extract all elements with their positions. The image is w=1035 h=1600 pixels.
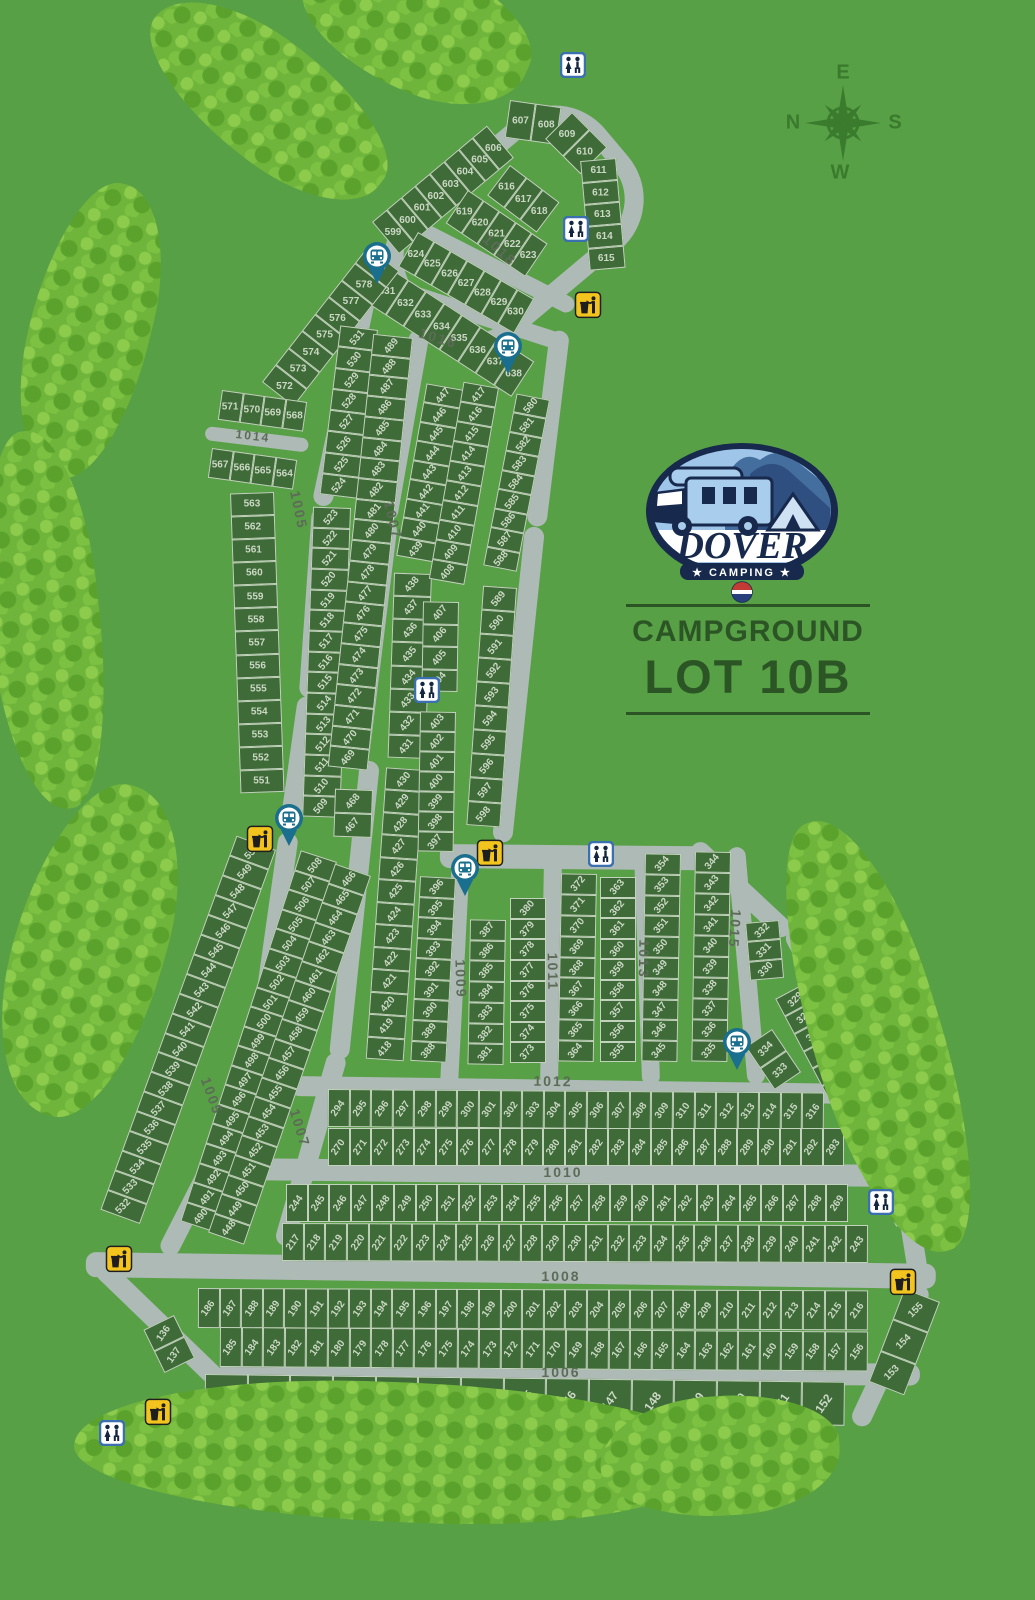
lot-282: 282 [586,1128,608,1166]
lot-226: 226 [477,1224,499,1262]
dover-camping-logo: DOVER ★ CAMPING ★ [630,430,854,608]
lot-521: 521 [311,548,350,570]
lot-589: 589 [481,586,517,612]
lot-255: 255 [524,1184,546,1222]
lot-270: 270 [328,1128,350,1166]
lot-308: 308 [630,1091,652,1129]
road-label-1010: 1010 [543,1164,582,1180]
lot-387: 387 [470,919,506,940]
lot-351: 351 [644,916,680,937]
lot-178: 178 [371,1328,393,1368]
lot-201: 201 [522,1289,544,1329]
lot-388: 388 [410,1040,447,1062]
title-rule-bottom [626,712,870,715]
lot-230: 230 [564,1224,586,1262]
lot-553: 553 [238,723,283,748]
lot-402: 402 [419,731,455,752]
trash-icon [890,1268,917,1300]
lot-422: 422 [372,947,411,972]
lot-397: 397 [418,831,454,852]
lot-221: 221 [369,1223,391,1261]
lot-392: 392 [415,958,452,980]
lot-296: 296 [371,1089,393,1127]
lot-393: 393 [416,938,453,960]
bus-stop-icon [491,331,525,380]
lot-191: 191 [306,1288,328,1328]
lot-378: 378 [510,939,546,960]
lot-309: 309 [651,1091,673,1129]
lot-181: 181 [306,1328,328,1368]
lot-594: 594 [473,705,509,731]
lot-192: 192 [328,1288,350,1328]
lot-166: 166 [630,1330,652,1370]
lot-593: 593 [475,681,511,707]
lot-219: 219 [325,1223,347,1261]
lot-263: 263 [697,1184,719,1222]
lot-419: 419 [367,1014,406,1039]
lot-277: 277 [479,1128,501,1166]
lot-273: 273 [393,1128,415,1166]
lot-249: 249 [394,1184,416,1222]
lot-360: 360 [600,939,636,960]
lot-362: 362 [600,898,636,919]
lot-340: 340 [693,935,729,957]
lot-468: 468 [334,789,373,814]
lot-247: 247 [351,1184,373,1222]
lot-276: 276 [457,1128,479,1166]
lot-243: 243 [846,1225,868,1263]
lot-299: 299 [436,1090,458,1128]
compass-letter-left: N [786,112,800,135]
road-label-1008: 1008 [541,1268,580,1284]
lot-264: 264 [718,1184,740,1222]
lot-strip: 363362361360359358357356355 [600,877,636,1062]
restroom-icon [868,1189,894,1220]
lot-172: 172 [500,1329,522,1369]
lot-197: 197 [436,1289,458,1329]
lot-281: 281 [565,1128,587,1166]
lot-367: 367 [559,978,595,1000]
lot-279: 279 [522,1128,544,1166]
lot-strip: 2172182192202212222232242252262272282292… [282,1223,868,1263]
lot-165: 165 [652,1330,674,1370]
lot-300: 300 [457,1090,479,1128]
lot-564: 564 [272,457,297,490]
lot-289: 289 [737,1128,759,1166]
lot-185: 185 [220,1327,242,1367]
road-label-1009: 1009 [452,959,469,999]
compass-letter-bottom: W [831,162,850,185]
road-label-1012: 1012 [533,1073,572,1090]
lot-346: 346 [642,1020,678,1041]
lot-357: 357 [600,1000,636,1021]
lot-strip: 563562561560559558557556555554553552551 [230,492,284,793]
lot-568: 568 [282,399,307,432]
lot-168: 168 [587,1330,609,1370]
lot-272: 272 [371,1128,393,1166]
lot-438: 438 [393,573,432,597]
lot-383: 383 [468,1002,504,1023]
lot-316: 316 [802,1092,824,1130]
logo-badge [732,582,752,602]
road-label-1013: 1013 [636,939,653,978]
lot-399: 399 [418,791,454,812]
lot-190: 190 [284,1288,306,1328]
bus-stop-icon [448,853,482,902]
lot-294: 294 [328,1089,350,1127]
lot-429: 429 [383,790,422,815]
lot-285: 285 [651,1128,673,1166]
lot-371: 371 [560,894,596,916]
restroom-icon [99,1420,125,1451]
lot-223: 223 [412,1223,434,1261]
lot-304: 304 [543,1091,565,1129]
lot-366: 366 [558,999,594,1021]
lot-406: 406 [422,624,458,647]
lot-372: 372 [561,873,597,895]
lot-232: 232 [607,1224,629,1262]
lot-268: 268 [805,1184,827,1222]
lot-426: 426 [378,857,417,882]
logo-name: DOVER [676,525,808,567]
lot-379: 379 [510,919,546,940]
lot-236: 236 [694,1224,716,1262]
lot-237: 237 [716,1225,738,1263]
lot-301: 301 [479,1090,501,1128]
lot-592: 592 [476,657,512,683]
lot-157: 157 [824,1331,846,1371]
lot-244: 244 [286,1184,308,1222]
lot-182: 182 [285,1327,307,1367]
lot-238: 238 [738,1225,760,1263]
lot-312: 312 [716,1092,738,1130]
lot-557: 557 [235,630,280,655]
lot-560: 560 [232,561,277,586]
lot-615: 615 [588,246,626,271]
lot-205: 205 [608,1289,630,1329]
lot-220: 220 [347,1223,369,1261]
lot-400: 400 [419,771,455,792]
lot-160: 160 [760,1331,782,1371]
lot-365: 365 [558,1020,594,1042]
lot-555: 555 [236,677,281,702]
lot-207: 207 [652,1290,674,1330]
bus-stop-icon [272,803,306,852]
lot-261: 261 [653,1184,675,1222]
lot-strip: 372371370369368367366365364 [558,873,597,1062]
lot-284: 284 [629,1128,651,1166]
lot-195: 195 [392,1289,414,1329]
restroom-icon [563,216,589,247]
lot-354: 354 [645,853,681,874]
lot-380: 380 [510,898,546,919]
lot-212: 212 [760,1290,782,1330]
lot-267: 267 [783,1184,805,1222]
lot-260: 260 [632,1184,654,1222]
lot-381: 381 [467,1044,503,1065]
lot-358: 358 [600,980,636,1001]
lot-310: 310 [673,1091,695,1129]
lot-523: 523 [312,507,351,529]
road-label-1015: 1015 [726,909,745,949]
lot-159: 159 [781,1331,803,1371]
lot-194: 194 [371,1289,393,1329]
lot-337: 337 [692,998,728,1020]
lot-307: 307 [608,1091,630,1129]
lot-176: 176 [414,1328,436,1368]
lot-186: 186 [198,1288,220,1328]
lot-291: 291 [780,1128,802,1166]
lot-297: 297 [392,1089,414,1127]
lot-184: 184 [241,1327,263,1367]
lot-strip: 2702712722732742752762772782792802812822… [328,1128,844,1166]
lot-163: 163 [695,1330,717,1370]
road-label-1005: 1005 [287,489,311,531]
lot-398: 398 [418,811,454,832]
lot-199: 199 [479,1289,501,1329]
lot-245: 245 [308,1184,330,1222]
lot-235: 235 [673,1224,695,1262]
page-title: CAMPGROUND [622,615,874,649]
compass-letter-top: E [836,62,849,85]
map-title-block: CAMPGROUND LOT 10B [622,604,874,715]
lot-162: 162 [716,1330,738,1370]
lot-292: 292 [801,1128,823,1166]
lot-303: 303 [522,1090,544,1128]
lot-180: 180 [328,1328,350,1368]
lot-348: 348 [642,978,678,999]
lot-225: 225 [455,1224,477,1262]
lot-strip: 1861871881891901911921931941951961971981… [198,1288,868,1330]
lot-175: 175 [436,1329,458,1369]
lot-239: 239 [759,1225,781,1263]
lot-strip: 2442452462472482492502512522532542552562… [286,1184,848,1222]
lot-234: 234 [651,1224,673,1262]
lot-352: 352 [644,895,680,916]
lot-355: 355 [600,1042,636,1063]
lot-173: 173 [479,1329,501,1369]
lot-467: 467 [333,813,372,838]
lot-595: 595 [471,729,507,755]
lot-377: 377 [510,960,546,981]
lot-269: 269 [826,1184,848,1222]
lot-189: 189 [263,1288,285,1328]
lot-210: 210 [716,1290,738,1330]
title-rule-top [626,604,870,607]
lot-559: 559 [233,584,278,609]
lot-strip: 403402401400399398397 [418,711,456,852]
lot-405: 405 [422,646,458,669]
lot-614: 614 [586,224,624,249]
lot-203: 203 [565,1289,587,1329]
road-label-1006: 1006 [541,1364,580,1380]
lot-613: 613 [584,202,622,227]
lot-229: 229 [542,1224,564,1262]
lot-248: 248 [372,1184,394,1222]
lot-394: 394 [417,917,454,939]
lot-519: 519 [309,589,348,611]
lot-179: 179 [349,1328,371,1368]
lot-278: 278 [500,1128,522,1166]
lot-590: 590 [480,610,516,636]
lot-193: 193 [349,1289,371,1329]
lot-280: 280 [543,1128,565,1166]
lot-208: 208 [673,1290,695,1330]
lot-177: 177 [392,1328,414,1368]
lot-361: 361 [600,918,636,939]
lot-427: 427 [380,835,419,860]
lot-359: 359 [600,959,636,980]
lot-520: 520 [310,569,349,591]
lot-158: 158 [803,1331,825,1371]
lot-257: 257 [567,1184,589,1222]
lot-196: 196 [414,1289,436,1329]
lot-206: 206 [630,1290,652,1330]
lot-156: 156 [846,1331,868,1371]
lot-558: 558 [234,607,279,632]
lot-302: 302 [500,1090,522,1128]
lot-562: 562 [231,515,276,540]
road-label-1011: 1011 [545,953,562,992]
lot-423: 423 [374,924,413,949]
lot-561: 561 [232,538,277,563]
lot-198: 198 [457,1289,479,1329]
lot-253: 253 [480,1184,502,1222]
lot-370: 370 [560,915,596,937]
lot-374: 374 [510,1022,546,1043]
lot-306: 306 [586,1091,608,1129]
lot-strip: 332331330 [745,920,784,981]
lot-265: 265 [740,1184,762,1222]
lot-209: 209 [695,1290,717,1330]
lot-428: 428 [381,812,420,837]
compass-rose: E S W N [783,63,903,183]
lot-343: 343 [694,872,730,894]
lot-strip: 387386385384383382381 [467,919,506,1065]
lot-strip: 380379378377376375374373 [510,898,546,1063]
lot-376: 376 [510,981,546,1002]
restroom-icon [588,841,614,872]
lot-524: 524 [320,473,360,499]
lot-313: 313 [737,1092,759,1130]
lot-strip: 567566565564 [208,448,297,490]
lot-228: 228 [521,1224,543,1262]
lot-330: 330 [748,959,784,981]
lot-401: 401 [419,751,455,772]
lot-522: 522 [312,527,351,549]
lot-341: 341 [694,914,730,936]
lot-286: 286 [672,1128,694,1166]
lot-252: 252 [459,1184,481,1222]
lot-611: 611 [580,158,618,183]
lot-242: 242 [824,1225,846,1263]
lot-612: 612 [582,180,620,205]
trash-icon [106,1245,133,1277]
lot-596: 596 [470,753,506,779]
lot-407: 407 [423,601,459,624]
lot-211: 211 [738,1290,760,1330]
lot-373: 373 [510,1042,546,1063]
lot-597: 597 [468,777,504,803]
trash-icon [247,825,274,857]
lot-strip: 2942952962972982993003013023033043053063… [328,1089,824,1130]
lot-382: 382 [468,1023,504,1044]
lot-290: 290 [758,1128,780,1166]
lot-385: 385 [469,961,505,982]
lot-204: 204 [587,1289,609,1329]
lot-213: 213 [781,1290,803,1330]
lot-274: 274 [414,1128,436,1166]
lot-598: 598 [466,801,502,827]
lot-345: 345 [641,1041,677,1062]
bus-stop-icon [360,241,394,290]
lot-390: 390 [413,999,450,1021]
lot-339: 339 [693,956,729,978]
lot-591: 591 [478,634,514,660]
restroom-icon [560,52,586,83]
lot-250: 250 [416,1184,438,1222]
lot-347: 347 [642,999,678,1020]
lot-231: 231 [586,1224,608,1262]
lot-strip: 468467 [333,789,373,838]
lot-420: 420 [369,991,408,1016]
lot-222: 222 [390,1223,412,1261]
lot-283: 283 [608,1128,630,1166]
lot-369: 369 [560,936,596,958]
lot-424: 424 [375,902,414,927]
lot-259: 259 [610,1184,632,1222]
logo-tagline: ★ CAMPING ★ [692,567,792,579]
lot-403: 403 [420,711,456,732]
lot-375: 375 [510,1001,546,1022]
lot-275: 275 [436,1128,458,1166]
lot-368: 368 [559,957,595,979]
lot-233: 233 [629,1224,651,1262]
lot-391: 391 [414,979,451,1001]
lot-262: 262 [675,1184,697,1222]
lot-251: 251 [437,1184,459,1222]
campground-map: 1018 1016 1014 1005 1007 1005 1007 1009 … [0,0,1035,1600]
lot-title: LOT 10B [622,649,874,704]
lot-246: 246 [329,1184,351,1222]
lot-563: 563 [230,492,275,517]
compass-letter-right: S [888,112,901,135]
lot-364: 364 [558,1040,594,1062]
lot-551: 551 [240,769,285,794]
lot-218: 218 [304,1223,326,1261]
lot-356: 356 [600,1021,636,1042]
lot-384: 384 [469,982,505,1003]
lot-224: 224 [434,1224,456,1262]
lot-202: 202 [544,1289,566,1329]
lot-188: 188 [241,1288,263,1328]
restroom-icon [414,677,440,708]
lot-552: 552 [239,746,284,771]
lot-314: 314 [759,1092,781,1130]
lot-227: 227 [499,1224,521,1262]
lot-556: 556 [236,653,281,678]
lot-271: 271 [350,1128,372,1166]
lot-167: 167 [608,1330,630,1370]
lot-256: 256 [545,1184,567,1222]
lot-174: 174 [457,1329,479,1369]
lot-187: 187 [219,1288,241,1328]
lot-338: 338 [692,977,728,999]
lot-183: 183 [263,1327,285,1367]
lot-241: 241 [803,1225,825,1263]
lot-469: 469 [328,746,370,771]
lot-254: 254 [502,1184,524,1222]
